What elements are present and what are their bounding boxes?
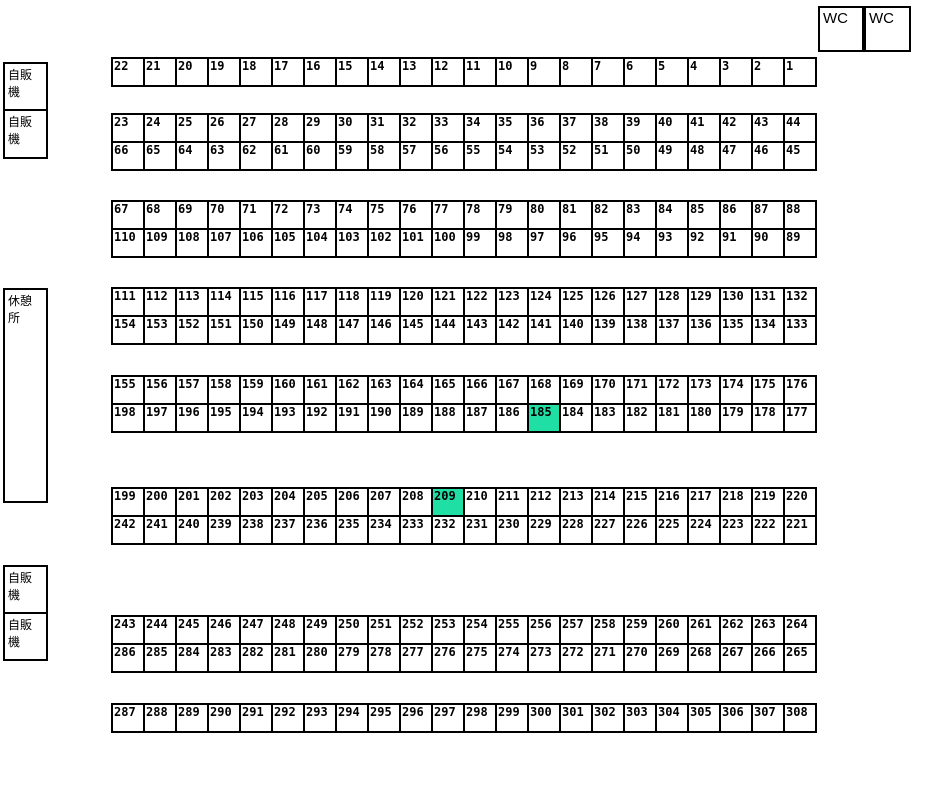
booth-cell-198[interactable]: 198 xyxy=(113,405,145,433)
booth-cell-187[interactable]: 187 xyxy=(465,405,497,433)
booth-cell-98[interactable]: 98 xyxy=(497,230,529,258)
booth-cell-203[interactable]: 203 xyxy=(241,489,273,517)
booth-cell-59[interactable]: 59 xyxy=(337,143,369,171)
booth-cell-88[interactable]: 88 xyxy=(785,202,817,230)
booth-cell-204[interactable]: 204 xyxy=(273,489,305,517)
booth-cell-286[interactable]: 286 xyxy=(113,645,145,673)
booth-cell-134[interactable]: 134 xyxy=(753,317,785,345)
booth-cell-4[interactable]: 4 xyxy=(689,59,721,87)
booth-cell-79[interactable]: 79 xyxy=(497,202,529,230)
booth-cell-211[interactable]: 211 xyxy=(497,489,529,517)
booth-cell-234[interactable]: 234 xyxy=(369,517,401,545)
booth-cell-132[interactable]: 132 xyxy=(785,289,817,317)
booth-cell-49[interactable]: 49 xyxy=(657,143,689,171)
booth-cell-80[interactable]: 80 xyxy=(529,202,561,230)
booth-cell-244[interactable]: 244 xyxy=(145,617,177,645)
booth-cell-9[interactable]: 9 xyxy=(529,59,561,87)
booth-cell-1[interactable]: 1 xyxy=(785,59,817,87)
booth-cell-293[interactable]: 293 xyxy=(305,705,337,733)
booth-cell-253[interactable]: 253 xyxy=(433,617,465,645)
booth-cell-92[interactable]: 92 xyxy=(689,230,721,258)
booth-cell-173[interactable]: 173 xyxy=(689,377,721,405)
booth-cell-177[interactable]: 177 xyxy=(785,405,817,433)
booth-cell-109[interactable]: 109 xyxy=(145,230,177,258)
booth-cell-277[interactable]: 277 xyxy=(401,645,433,673)
booth-cell-229[interactable]: 229 xyxy=(529,517,561,545)
booth-cell-278[interactable]: 278 xyxy=(369,645,401,673)
booth-cell-90[interactable]: 90 xyxy=(753,230,785,258)
booth-cell-11[interactable]: 11 xyxy=(465,59,497,87)
booth-cell-33[interactable]: 33 xyxy=(433,115,465,143)
booth-cell-72[interactable]: 72 xyxy=(273,202,305,230)
booth-cell-215[interactable]: 215 xyxy=(625,489,657,517)
booth-cell-236[interactable]: 236 xyxy=(305,517,337,545)
booth-cell-216[interactable]: 216 xyxy=(657,489,689,517)
booth-cell-17[interactable]: 17 xyxy=(273,59,305,87)
booth-cell-13[interactable]: 13 xyxy=(401,59,433,87)
booth-cell-291[interactable]: 291 xyxy=(241,705,273,733)
booth-cell-179[interactable]: 179 xyxy=(721,405,753,433)
booth-cell-223[interactable]: 223 xyxy=(721,517,753,545)
booth-cell-289[interactable]: 289 xyxy=(177,705,209,733)
booth-cell-77[interactable]: 77 xyxy=(433,202,465,230)
booth-cell-147[interactable]: 147 xyxy=(337,317,369,345)
booth-cell-96[interactable]: 96 xyxy=(561,230,593,258)
booth-cell-290[interactable]: 290 xyxy=(209,705,241,733)
booth-cell-139[interactable]: 139 xyxy=(593,317,625,345)
booth-cell-60[interactable]: 60 xyxy=(305,143,337,171)
booth-cell-68[interactable]: 68 xyxy=(145,202,177,230)
booth-cell-117[interactable]: 117 xyxy=(305,289,337,317)
booth-cell-145[interactable]: 145 xyxy=(401,317,433,345)
booth-cell-121[interactable]: 121 xyxy=(433,289,465,317)
booth-cell-292[interactable]: 292 xyxy=(273,705,305,733)
booth-cell-189[interactable]: 189 xyxy=(401,405,433,433)
booth-cell-44[interactable]: 44 xyxy=(785,115,817,143)
booth-cell-113[interactable]: 113 xyxy=(177,289,209,317)
booth-cell-163[interactable]: 163 xyxy=(369,377,401,405)
booth-cell-25[interactable]: 25 xyxy=(177,115,209,143)
booth-cell-150[interactable]: 150 xyxy=(241,317,273,345)
booth-cell-70[interactable]: 70 xyxy=(209,202,241,230)
booth-cell-142[interactable]: 142 xyxy=(497,317,529,345)
booth-cell-261[interactable]: 261 xyxy=(689,617,721,645)
booth-cell-111[interactable]: 111 xyxy=(113,289,145,317)
booth-cell-247[interactable]: 247 xyxy=(241,617,273,645)
booth-cell-222[interactable]: 222 xyxy=(753,517,785,545)
booth-cell-205[interactable]: 205 xyxy=(305,489,337,517)
booth-cell-94[interactable]: 94 xyxy=(625,230,657,258)
booth-cell-36[interactable]: 36 xyxy=(529,115,561,143)
booth-cell-137[interactable]: 137 xyxy=(657,317,689,345)
booth-cell-93[interactable]: 93 xyxy=(657,230,689,258)
booth-cell-213[interactable]: 213 xyxy=(561,489,593,517)
booth-cell-81[interactable]: 81 xyxy=(561,202,593,230)
booth-cell-75[interactable]: 75 xyxy=(369,202,401,230)
booth-cell-62[interactable]: 62 xyxy=(241,143,273,171)
booth-cell-115[interactable]: 115 xyxy=(241,289,273,317)
booth-cell-107[interactable]: 107 xyxy=(209,230,241,258)
booth-cell-305[interactable]: 305 xyxy=(689,705,721,733)
booth-cell-308[interactable]: 308 xyxy=(785,705,817,733)
booth-cell-118[interactable]: 118 xyxy=(337,289,369,317)
booth-cell-54[interactable]: 54 xyxy=(497,143,529,171)
booth-cell-91[interactable]: 91 xyxy=(721,230,753,258)
booth-cell-10[interactable]: 10 xyxy=(497,59,529,87)
booth-cell-188[interactable]: 188 xyxy=(433,405,465,433)
booth-cell-128[interactable]: 128 xyxy=(657,289,689,317)
booth-cell-52[interactable]: 52 xyxy=(561,143,593,171)
booth-cell-176[interactable]: 176 xyxy=(785,377,817,405)
booth-cell-218[interactable]: 218 xyxy=(721,489,753,517)
booth-cell-263[interactable]: 263 xyxy=(753,617,785,645)
booth-cell-85[interactable]: 85 xyxy=(689,202,721,230)
booth-cell-160[interactable]: 160 xyxy=(273,377,305,405)
booth-cell-228[interactable]: 228 xyxy=(561,517,593,545)
booth-cell-285[interactable]: 285 xyxy=(145,645,177,673)
booth-cell-65[interactable]: 65 xyxy=(145,143,177,171)
booth-cell-298[interactable]: 298 xyxy=(465,705,497,733)
booth-cell-209[interactable]: 209 xyxy=(433,489,465,517)
booth-cell-114[interactable]: 114 xyxy=(209,289,241,317)
booth-cell-178[interactable]: 178 xyxy=(753,405,785,433)
booth-cell-233[interactable]: 233 xyxy=(401,517,433,545)
booth-cell-301[interactable]: 301 xyxy=(561,705,593,733)
booth-cell-168[interactable]: 168 xyxy=(529,377,561,405)
booth-cell-102[interactable]: 102 xyxy=(369,230,401,258)
booth-cell-99[interactable]: 99 xyxy=(465,230,497,258)
booth-cell-106[interactable]: 106 xyxy=(241,230,273,258)
booth-cell-14[interactable]: 14 xyxy=(369,59,401,87)
booth-cell-196[interactable]: 196 xyxy=(177,405,209,433)
booth-cell-53[interactable]: 53 xyxy=(529,143,561,171)
booth-cell-288[interactable]: 288 xyxy=(145,705,177,733)
booth-cell-200[interactable]: 200 xyxy=(145,489,177,517)
booth-cell-257[interactable]: 257 xyxy=(561,617,593,645)
booth-cell-217[interactable]: 217 xyxy=(689,489,721,517)
booth-cell-225[interactable]: 225 xyxy=(657,517,689,545)
booth-cell-126[interactable]: 126 xyxy=(593,289,625,317)
booth-cell-56[interactable]: 56 xyxy=(433,143,465,171)
booth-cell-131[interactable]: 131 xyxy=(753,289,785,317)
booth-cell-24[interactable]: 24 xyxy=(145,115,177,143)
booth-cell-281[interactable]: 281 xyxy=(273,645,305,673)
booth-cell-258[interactable]: 258 xyxy=(593,617,625,645)
booth-cell-267[interactable]: 267 xyxy=(721,645,753,673)
booth-cell-158[interactable]: 158 xyxy=(209,377,241,405)
booth-cell-307[interactable]: 307 xyxy=(753,705,785,733)
booth-cell-294[interactable]: 294 xyxy=(337,705,369,733)
booth-cell-191[interactable]: 191 xyxy=(337,405,369,433)
booth-cell-193[interactable]: 193 xyxy=(273,405,305,433)
booth-cell-144[interactable]: 144 xyxy=(433,317,465,345)
booth-cell-238[interactable]: 238 xyxy=(241,517,273,545)
booth-cell-40[interactable]: 40 xyxy=(657,115,689,143)
booth-cell-208[interactable]: 208 xyxy=(401,489,433,517)
booth-cell-283[interactable]: 283 xyxy=(209,645,241,673)
booth-cell-138[interactable]: 138 xyxy=(625,317,657,345)
booth-cell-127[interactable]: 127 xyxy=(625,289,657,317)
booth-cell-219[interactable]: 219 xyxy=(753,489,785,517)
booth-cell-252[interactable]: 252 xyxy=(401,617,433,645)
booth-cell-104[interactable]: 104 xyxy=(305,230,337,258)
booth-cell-180[interactable]: 180 xyxy=(689,405,721,433)
booth-cell-26[interactable]: 26 xyxy=(209,115,241,143)
booth-cell-28[interactable]: 28 xyxy=(273,115,305,143)
booth-cell-30[interactable]: 30 xyxy=(337,115,369,143)
booth-cell-300[interactable]: 300 xyxy=(529,705,561,733)
booth-cell-171[interactable]: 171 xyxy=(625,377,657,405)
booth-cell-245[interactable]: 245 xyxy=(177,617,209,645)
booth-cell-116[interactable]: 116 xyxy=(273,289,305,317)
booth-cell-156[interactable]: 156 xyxy=(145,377,177,405)
booth-cell-89[interactable]: 89 xyxy=(785,230,817,258)
booth-cell-226[interactable]: 226 xyxy=(625,517,657,545)
booth-cell-133[interactable]: 133 xyxy=(785,317,817,345)
booth-cell-37[interactable]: 37 xyxy=(561,115,593,143)
booth-cell-108[interactable]: 108 xyxy=(177,230,209,258)
booth-cell-146[interactable]: 146 xyxy=(369,317,401,345)
booth-cell-87[interactable]: 87 xyxy=(753,202,785,230)
booth-cell-47[interactable]: 47 xyxy=(721,143,753,171)
booth-cell-230[interactable]: 230 xyxy=(497,517,529,545)
booth-cell-190[interactable]: 190 xyxy=(369,405,401,433)
booth-cell-243[interactable]: 243 xyxy=(113,617,145,645)
booth-cell-112[interactable]: 112 xyxy=(145,289,177,317)
booth-cell-152[interactable]: 152 xyxy=(177,317,209,345)
booth-cell-76[interactable]: 76 xyxy=(401,202,433,230)
booth-cell-35[interactable]: 35 xyxy=(497,115,529,143)
booth-cell-165[interactable]: 165 xyxy=(433,377,465,405)
booth-cell-296[interactable]: 296 xyxy=(401,705,433,733)
booth-cell-136[interactable]: 136 xyxy=(689,317,721,345)
booth-cell-194[interactable]: 194 xyxy=(241,405,273,433)
booth-cell-110[interactable]: 110 xyxy=(113,230,145,258)
booth-cell-66[interactable]: 66 xyxy=(113,143,145,171)
booth-cell-155[interactable]: 155 xyxy=(113,377,145,405)
booth-cell-164[interactable]: 164 xyxy=(401,377,433,405)
booth-cell-154[interactable]: 154 xyxy=(113,317,145,345)
booth-cell-271[interactable]: 271 xyxy=(593,645,625,673)
booth-cell-123[interactable]: 123 xyxy=(497,289,529,317)
booth-cell-83[interactable]: 83 xyxy=(625,202,657,230)
booth-cell-71[interactable]: 71 xyxy=(241,202,273,230)
booth-cell-220[interactable]: 220 xyxy=(785,489,817,517)
booth-cell-27[interactable]: 27 xyxy=(241,115,273,143)
booth-cell-124[interactable]: 124 xyxy=(529,289,561,317)
booth-cell-249[interactable]: 249 xyxy=(305,617,337,645)
booth-cell-7[interactable]: 7 xyxy=(593,59,625,87)
booth-cell-129[interactable]: 129 xyxy=(689,289,721,317)
booth-cell-39[interactable]: 39 xyxy=(625,115,657,143)
booth-cell-227[interactable]: 227 xyxy=(593,517,625,545)
booth-cell-130[interactable]: 130 xyxy=(721,289,753,317)
booth-cell-21[interactable]: 21 xyxy=(145,59,177,87)
booth-cell-16[interactable]: 16 xyxy=(305,59,337,87)
booth-cell-140[interactable]: 140 xyxy=(561,317,593,345)
booth-cell-299[interactable]: 299 xyxy=(497,705,529,733)
booth-cell-237[interactable]: 237 xyxy=(273,517,305,545)
booth-cell-57[interactable]: 57 xyxy=(401,143,433,171)
booth-cell-197[interactable]: 197 xyxy=(145,405,177,433)
booth-cell-273[interactable]: 273 xyxy=(529,645,561,673)
booth-cell-20[interactable]: 20 xyxy=(177,59,209,87)
booth-cell-151[interactable]: 151 xyxy=(209,317,241,345)
booth-cell-48[interactable]: 48 xyxy=(689,143,721,171)
booth-cell-269[interactable]: 269 xyxy=(657,645,689,673)
booth-cell-8[interactable]: 8 xyxy=(561,59,593,87)
booth-cell-149[interactable]: 149 xyxy=(273,317,305,345)
booth-cell-74[interactable]: 74 xyxy=(337,202,369,230)
booth-cell-34[interactable]: 34 xyxy=(465,115,497,143)
booth-cell-119[interactable]: 119 xyxy=(369,289,401,317)
booth-cell-241[interactable]: 241 xyxy=(145,517,177,545)
booth-cell-182[interactable]: 182 xyxy=(625,405,657,433)
booth-cell-172[interactable]: 172 xyxy=(657,377,689,405)
booth-cell-64[interactable]: 64 xyxy=(177,143,209,171)
booth-cell-105[interactable]: 105 xyxy=(273,230,305,258)
booth-cell-143[interactable]: 143 xyxy=(465,317,497,345)
booth-cell-42[interactable]: 42 xyxy=(721,115,753,143)
booth-cell-38[interactable]: 38 xyxy=(593,115,625,143)
booth-cell-304[interactable]: 304 xyxy=(657,705,689,733)
booth-cell-84[interactable]: 84 xyxy=(657,202,689,230)
booth-cell-97[interactable]: 97 xyxy=(529,230,561,258)
booth-cell-268[interactable]: 268 xyxy=(689,645,721,673)
booth-cell-262[interactable]: 262 xyxy=(721,617,753,645)
booth-cell-159[interactable]: 159 xyxy=(241,377,273,405)
booth-cell-43[interactable]: 43 xyxy=(753,115,785,143)
booth-cell-279[interactable]: 279 xyxy=(337,645,369,673)
booth-cell-287[interactable]: 287 xyxy=(113,705,145,733)
booth-cell-221[interactable]: 221 xyxy=(785,517,817,545)
booth-cell-41[interactable]: 41 xyxy=(689,115,721,143)
booth-cell-169[interactable]: 169 xyxy=(561,377,593,405)
booth-cell-280[interactable]: 280 xyxy=(305,645,337,673)
booth-cell-181[interactable]: 181 xyxy=(657,405,689,433)
booth-cell-185[interactable]: 185 xyxy=(529,405,561,433)
booth-cell-141[interactable]: 141 xyxy=(529,317,561,345)
booth-cell-69[interactable]: 69 xyxy=(177,202,209,230)
booth-cell-12[interactable]: 12 xyxy=(433,59,465,87)
booth-cell-303[interactable]: 303 xyxy=(625,705,657,733)
booth-cell-232[interactable]: 232 xyxy=(433,517,465,545)
booth-cell-6[interactable]: 6 xyxy=(625,59,657,87)
booth-cell-266[interactable]: 266 xyxy=(753,645,785,673)
booth-cell-51[interactable]: 51 xyxy=(593,143,625,171)
booth-cell-161[interactable]: 161 xyxy=(305,377,337,405)
booth-cell-297[interactable]: 297 xyxy=(433,705,465,733)
booth-cell-264[interactable]: 264 xyxy=(785,617,817,645)
booth-cell-255[interactable]: 255 xyxy=(497,617,529,645)
booth-cell-101[interactable]: 101 xyxy=(401,230,433,258)
booth-cell-214[interactable]: 214 xyxy=(593,489,625,517)
booth-cell-125[interactable]: 125 xyxy=(561,289,593,317)
booth-cell-61[interactable]: 61 xyxy=(273,143,305,171)
booth-cell-195[interactable]: 195 xyxy=(209,405,241,433)
booth-cell-29[interactable]: 29 xyxy=(305,115,337,143)
booth-cell-175[interactable]: 175 xyxy=(753,377,785,405)
booth-cell-207[interactable]: 207 xyxy=(369,489,401,517)
booth-cell-78[interactable]: 78 xyxy=(465,202,497,230)
booth-cell-63[interactable]: 63 xyxy=(209,143,241,171)
booth-cell-242[interactable]: 242 xyxy=(113,517,145,545)
booth-cell-212[interactable]: 212 xyxy=(529,489,561,517)
booth-cell-282[interactable]: 282 xyxy=(241,645,273,673)
booth-cell-86[interactable]: 86 xyxy=(721,202,753,230)
booth-cell-46[interactable]: 46 xyxy=(753,143,785,171)
booth-cell-254[interactable]: 254 xyxy=(465,617,497,645)
booth-cell-240[interactable]: 240 xyxy=(177,517,209,545)
booth-cell-148[interactable]: 148 xyxy=(305,317,337,345)
booth-cell-183[interactable]: 183 xyxy=(593,405,625,433)
booth-cell-302[interactable]: 302 xyxy=(593,705,625,733)
booth-cell-275[interactable]: 275 xyxy=(465,645,497,673)
booth-cell-58[interactable]: 58 xyxy=(369,143,401,171)
booth-cell-120[interactable]: 120 xyxy=(401,289,433,317)
booth-cell-224[interactable]: 224 xyxy=(689,517,721,545)
booth-cell-274[interactable]: 274 xyxy=(497,645,529,673)
booth-cell-248[interactable]: 248 xyxy=(273,617,305,645)
booth-cell-246[interactable]: 246 xyxy=(209,617,241,645)
booth-cell-100[interactable]: 100 xyxy=(433,230,465,258)
booth-cell-162[interactable]: 162 xyxy=(337,377,369,405)
booth-cell-5[interactable]: 5 xyxy=(657,59,689,87)
booth-cell-250[interactable]: 250 xyxy=(337,617,369,645)
booth-cell-206[interactable]: 206 xyxy=(337,489,369,517)
booth-cell-135[interactable]: 135 xyxy=(721,317,753,345)
booth-cell-3[interactable]: 3 xyxy=(721,59,753,87)
booth-cell-199[interactable]: 199 xyxy=(113,489,145,517)
booth-cell-55[interactable]: 55 xyxy=(465,143,497,171)
booth-cell-122[interactable]: 122 xyxy=(465,289,497,317)
booth-cell-2[interactable]: 2 xyxy=(753,59,785,87)
booth-cell-18[interactable]: 18 xyxy=(241,59,273,87)
booth-cell-103[interactable]: 103 xyxy=(337,230,369,258)
booth-cell-167[interactable]: 167 xyxy=(497,377,529,405)
booth-cell-201[interactable]: 201 xyxy=(177,489,209,517)
booth-cell-295[interactable]: 295 xyxy=(369,705,401,733)
booth-cell-23[interactable]: 23 xyxy=(113,115,145,143)
booth-cell-265[interactable]: 265 xyxy=(785,645,817,673)
booth-cell-192[interactable]: 192 xyxy=(305,405,337,433)
booth-cell-22[interactable]: 22 xyxy=(113,59,145,87)
booth-cell-31[interactable]: 31 xyxy=(369,115,401,143)
booth-cell-251[interactable]: 251 xyxy=(369,617,401,645)
booth-cell-259[interactable]: 259 xyxy=(625,617,657,645)
booth-cell-260[interactable]: 260 xyxy=(657,617,689,645)
booth-cell-67[interactable]: 67 xyxy=(113,202,145,230)
booth-cell-284[interactable]: 284 xyxy=(177,645,209,673)
booth-cell-186[interactable]: 186 xyxy=(497,405,529,433)
booth-cell-306[interactable]: 306 xyxy=(721,705,753,733)
booth-cell-82[interactable]: 82 xyxy=(593,202,625,230)
booth-cell-231[interactable]: 231 xyxy=(465,517,497,545)
booth-cell-166[interactable]: 166 xyxy=(465,377,497,405)
booth-cell-19[interactable]: 19 xyxy=(209,59,241,87)
booth-cell-174[interactable]: 174 xyxy=(721,377,753,405)
booth-cell-15[interactable]: 15 xyxy=(337,59,369,87)
booth-cell-239[interactable]: 239 xyxy=(209,517,241,545)
booth-cell-276[interactable]: 276 xyxy=(433,645,465,673)
booth-cell-235[interactable]: 235 xyxy=(337,517,369,545)
booth-cell-202[interactable]: 202 xyxy=(209,489,241,517)
booth-cell-153[interactable]: 153 xyxy=(145,317,177,345)
booth-cell-157[interactable]: 157 xyxy=(177,377,209,405)
booth-cell-184[interactable]: 184 xyxy=(561,405,593,433)
booth-cell-170[interactable]: 170 xyxy=(593,377,625,405)
booth-cell-50[interactable]: 50 xyxy=(625,143,657,171)
